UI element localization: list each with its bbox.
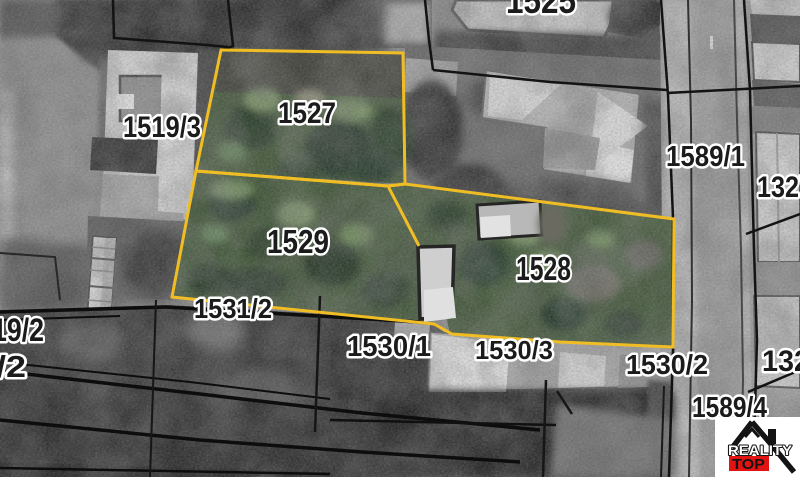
svg-text:1530/3: 1530/3 xyxy=(475,335,553,365)
svg-text:1530/2: 1530/2 xyxy=(626,349,708,380)
svg-text:1527: 1527 xyxy=(278,97,336,130)
svg-text:132: 132 xyxy=(762,345,800,378)
svg-text:1525: 1525 xyxy=(506,0,576,21)
svg-text:1529: 1529 xyxy=(267,223,329,260)
svg-text:1327: 1327 xyxy=(757,171,800,204)
svg-text:19/2: 19/2 xyxy=(0,312,44,348)
svg-text:TOP: TOP xyxy=(732,456,765,473)
svg-text:1519/3: 1519/3 xyxy=(123,111,201,144)
svg-text:1589/1: 1589/1 xyxy=(666,141,745,173)
svg-text:1530/1: 1530/1 xyxy=(347,331,431,363)
svg-text:/2: /2 xyxy=(0,349,26,384)
svg-text:1531/2: 1531/2 xyxy=(194,293,272,324)
svg-text:1528: 1528 xyxy=(516,250,571,287)
